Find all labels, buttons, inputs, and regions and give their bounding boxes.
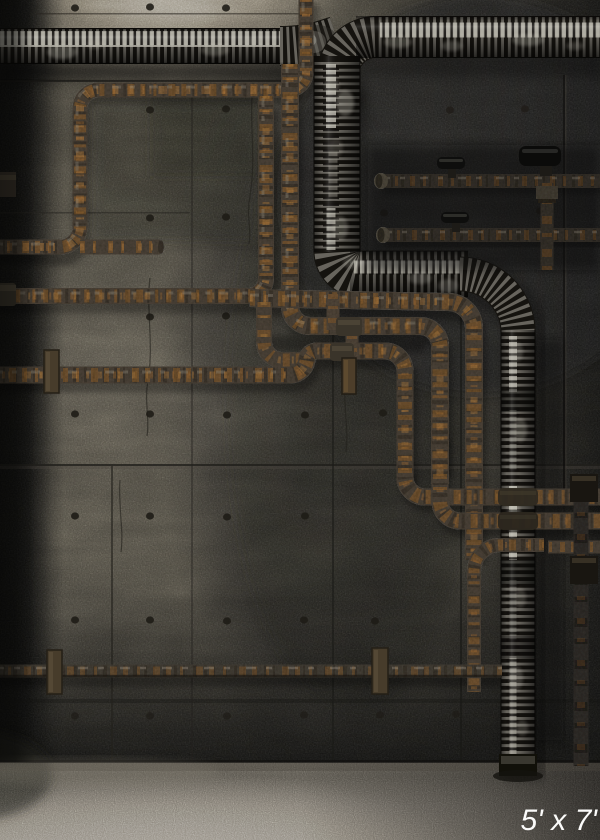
svg-text:5' x 7': 5' x 7' <box>521 804 599 837</box>
